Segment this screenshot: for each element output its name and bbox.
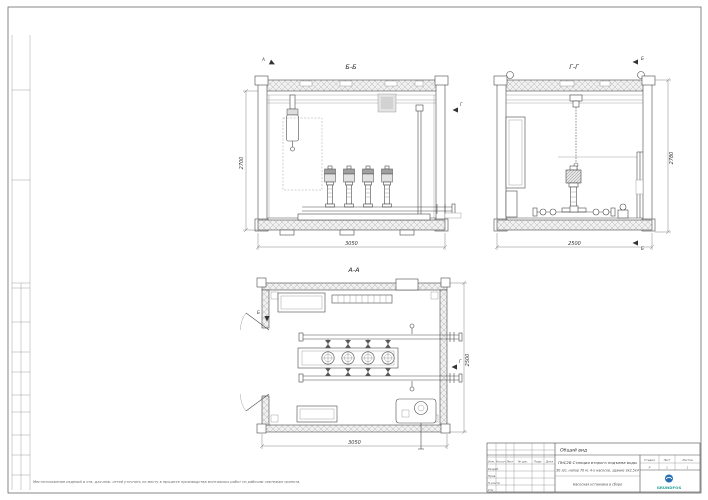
roof-hatch bbox=[396, 279, 418, 290]
discharge-manifold-plan bbox=[299, 373, 462, 391]
wall-left-lower bbox=[262, 396, 269, 425]
rev-col-data: Дата bbox=[545, 460, 554, 464]
lifting-eye-left bbox=[507, 72, 514, 79]
wall-right bbox=[440, 290, 447, 425]
heater-plan bbox=[297, 406, 337, 422]
project-title-line1: ПНС2В Станция второго подъема воды bbox=[558, 460, 637, 465]
sheets-value: 1 bbox=[687, 466, 689, 470]
floor-panel bbox=[258, 220, 445, 230]
svg-text:Б: Б bbox=[641, 56, 644, 61]
sheet-name: Насосная установка в сборе bbox=[573, 483, 622, 487]
rev-row-nkontr: Н.контр. bbox=[488, 481, 501, 485]
svg-text:А: А bbox=[261, 57, 265, 62]
dim-front-bottom-label: 3050 bbox=[345, 241, 358, 247]
project-title-line2: 50 л/с, напор 70 м, 4-х насосов, здание … bbox=[556, 469, 639, 473]
dim-side-bottom-label: 2500 bbox=[568, 241, 581, 247]
filing-strip bbox=[12, 35, 30, 490]
electrical-cabinet bbox=[506, 117, 525, 217]
cut-mark-side-bottom: Б bbox=[633, 240, 645, 251]
corner-post-left bbox=[497, 80, 506, 220]
dim-front-left: 2700 bbox=[239, 89, 258, 232]
chain-hoist bbox=[570, 95, 582, 173]
manifold-side bbox=[533, 206, 615, 216]
svg-text:Б: Б bbox=[641, 246, 644, 251]
sheets-label: Листов bbox=[681, 458, 693, 462]
base-frame bbox=[298, 214, 430, 220]
stage-label: Стадия bbox=[644, 458, 655, 462]
drain-unit-side bbox=[618, 204, 628, 218]
dim-front-left-label: 2700 bbox=[239, 157, 245, 170]
wall-top bbox=[262, 283, 447, 290]
section-label-side: Г-Г bbox=[569, 63, 580, 71]
riser-pipe-side bbox=[636, 152, 643, 218]
rev-col-dok: № док. bbox=[517, 460, 528, 464]
pump-group-front bbox=[325, 166, 393, 207]
dim-side-bottom: 2500 bbox=[495, 233, 654, 250]
doc-type-label: Общий вид bbox=[560, 448, 587, 454]
rev-col-podp: Подп. bbox=[534, 460, 543, 464]
dim-side-right-label: 2780 bbox=[669, 152, 675, 165]
company-logo: GRUNDFOS bbox=[657, 475, 682, 491]
dim-side-right: 2780 bbox=[655, 78, 675, 234]
cut-mark-plan-right: Г bbox=[452, 359, 463, 370]
view-plan: А-А bbox=[240, 266, 471, 449]
view-front-section: Б-Б bbox=[239, 57, 463, 250]
dim-front-bottom: 3050 bbox=[256, 233, 447, 250]
rev-row-utv: Утв. bbox=[488, 488, 494, 492]
dim-plan-bottom: 3050 bbox=[260, 434, 449, 449]
wall-left-upper bbox=[262, 290, 269, 328]
pump-skid-plan bbox=[298, 339, 398, 376]
sheet-footnote: Местоположение изделий и отв. для инж. с… bbox=[33, 480, 300, 484]
revision-table: Изм. Кол.уч Лист № док. Подп. Дата Разра… bbox=[487, 443, 555, 492]
riser-pipe bbox=[416, 105, 423, 218]
svg-text:Г: Г bbox=[460, 102, 463, 107]
roof-panel bbox=[505, 80, 644, 91]
floor-panel bbox=[497, 220, 652, 230]
rev-col-list: Лист bbox=[505, 460, 513, 464]
corner-post-left bbox=[258, 80, 267, 220]
drainage-sump bbox=[396, 399, 436, 449]
sheet-value: 1 bbox=[666, 466, 668, 470]
dim-plan-bottom-label: 3050 bbox=[348, 440, 361, 446]
expansion-vessel bbox=[287, 95, 299, 151]
stage-sheet-cells: Стадия Лист Листов Р 1 1 bbox=[640, 455, 700, 470]
corner-post-right bbox=[436, 80, 445, 220]
title-block: Изм. Кол.уч Лист № док. Подп. Дата Разра… bbox=[487, 443, 700, 492]
logo-text: GRUNDFOS bbox=[657, 485, 682, 490]
rev-row-prov: Пров. bbox=[488, 474, 496, 478]
cut-mark-side-top: Б bbox=[633, 56, 645, 65]
suction-manifold-plan bbox=[299, 324, 462, 342]
section-label-plan: А-А bbox=[347, 266, 359, 274]
svg-text:Б: Б bbox=[257, 310, 260, 315]
pump-side bbox=[562, 166, 586, 212]
rev-col-koluch: Кол.уч bbox=[496, 460, 506, 464]
svg-text:Г: Г bbox=[459, 359, 462, 364]
sheet-label: Лист bbox=[662, 458, 670, 462]
dim-plan-right: 2500 bbox=[449, 281, 471, 434]
view-side-section: Г-Г bbox=[494, 56, 675, 251]
section-label-front: Б-Б bbox=[345, 63, 357, 71]
rev-row-razrab: Разраб. bbox=[488, 467, 499, 471]
corner-post-right bbox=[643, 80, 652, 220]
drawing-sheet: Б-Б bbox=[0, 0, 708, 500]
drawing-canvas: Б-Б bbox=[0, 0, 708, 500]
cable-tray bbox=[332, 295, 392, 303]
stage-value: Р bbox=[649, 466, 651, 470]
control-cabinet-plan bbox=[278, 293, 325, 312]
cut-mark-front-top: А bbox=[261, 57, 276, 67]
rev-col-izm: Изм. bbox=[488, 460, 495, 464]
cut-mark-front-right: Г bbox=[453, 102, 464, 113]
vent-grille bbox=[378, 94, 396, 112]
wall-bottom bbox=[262, 425, 447, 432]
dim-plan-right-label: 2500 bbox=[465, 354, 471, 367]
